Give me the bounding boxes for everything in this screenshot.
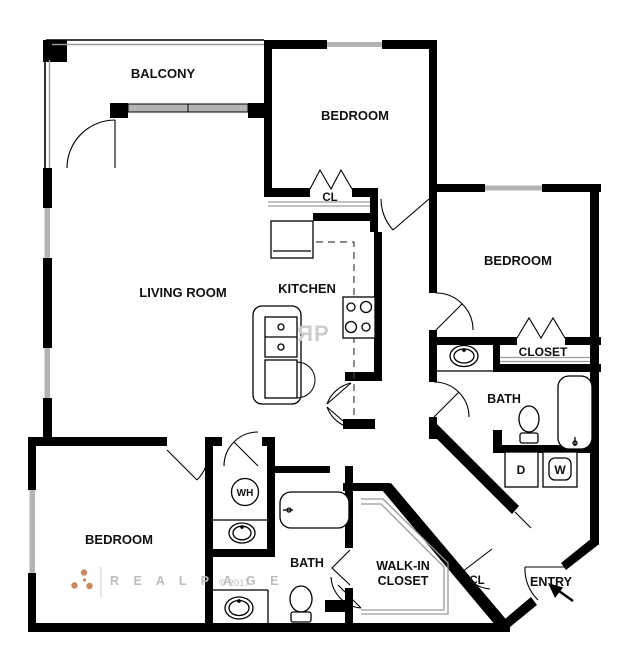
label-dryer: D	[517, 463, 526, 477]
balcony-door	[67, 120, 115, 168]
bathtub-bottom	[280, 492, 349, 528]
dishwasher	[265, 360, 297, 398]
toilet-bath-right	[519, 406, 539, 443]
label-washer: W	[554, 463, 566, 477]
rp-monogram: R P	[297, 321, 329, 346]
label-closet-hall: CL	[469, 575, 484, 587]
label-walkin-line1: WALK-IN	[376, 559, 429, 573]
label-bedroom-top: BEDROOM	[321, 108, 389, 123]
hall-door	[393, 199, 429, 230]
sink-vanity-upper	[213, 520, 275, 543]
walkin-bifold	[332, 550, 350, 585]
sink-bath-right	[437, 346, 493, 372]
closet-right-bifold	[517, 318, 565, 338]
label-balcony: BALCONY	[131, 66, 196, 81]
window-living-upper	[45, 208, 51, 258]
label-entry: ENTRY	[530, 575, 573, 589]
label-walkin-line2: CLOSET	[378, 574, 429, 588]
label-living-room: LIVING ROOM	[139, 285, 226, 300]
stove	[343, 297, 375, 338]
window-bedroom-top	[327, 42, 382, 47]
window-bedroom-bottom	[30, 490, 36, 573]
realpage-watermark: R E A L P A G E © 2017	[71, 567, 284, 597]
toilet-bath-bottom	[290, 586, 312, 622]
label-water-heater: WH	[237, 488, 254, 499]
window-living-lower	[45, 348, 51, 398]
kitchen-fixtures	[253, 221, 375, 417]
bathtub-right	[558, 376, 592, 449]
entry-lower-diagonal	[499, 597, 537, 631]
floorplan: BALCONY BEDROOM LIVING ROOM KITCHEN CL B…	[0, 0, 634, 654]
realpage-logo-dots	[71, 569, 92, 589]
label-bedroom-bottom: BEDROOM	[85, 532, 153, 547]
label-bedroom-right: BEDROOM	[484, 253, 552, 268]
monogram-p: P	[314, 321, 329, 346]
label-kitchen: KITCHEN	[278, 281, 336, 296]
closet-top-bifold	[310, 170, 352, 189]
label-bath-bottom: BATH	[290, 556, 324, 570]
label-closet-top: CL	[322, 192, 337, 204]
label-bath-right: BATH	[487, 392, 521, 406]
entry-upper-diagonal	[561, 538, 598, 570]
refrigerator	[271, 221, 313, 258]
monogram-mirrored-r: R	[297, 321, 313, 346]
pillar	[43, 40, 67, 62]
closet-hall-door	[462, 549, 492, 572]
label-closet-right: CLOSET	[519, 345, 568, 359]
window-bedroom-right	[485, 186, 542, 191]
copyright-text: © 2017	[219, 578, 250, 589]
sink-vanity-lower	[213, 590, 268, 623]
realpage-brand-text: R E A L P A G E	[110, 574, 284, 588]
